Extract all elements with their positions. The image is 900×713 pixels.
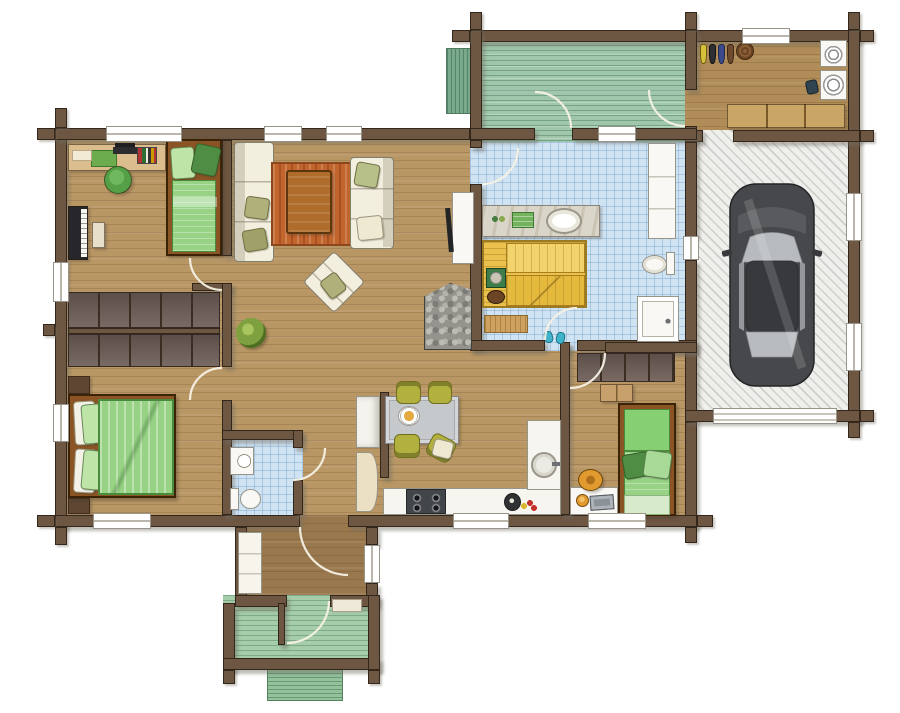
piano-keys	[81, 209, 87, 257]
shoe	[700, 44, 707, 64]
log-end	[848, 422, 860, 438]
laptop	[590, 494, 615, 511]
wall-bath-bottom-a	[470, 340, 545, 351]
single-bed-1	[166, 139, 222, 256]
log-end	[697, 515, 713, 527]
window	[453, 513, 509, 529]
log-end	[470, 12, 482, 30]
washbasin	[230, 447, 254, 475]
double-bed	[68, 394, 176, 498]
armchair-pillow	[319, 271, 348, 301]
garage-service-door	[683, 236, 699, 260]
toilet-bowl	[642, 255, 667, 274]
wall-bath-top-a	[470, 128, 535, 140]
piano-bench	[92, 222, 105, 248]
log-end	[685, 12, 697, 30]
dining-chair	[396, 381, 421, 404]
window	[598, 126, 636, 142]
vanity-sink	[546, 208, 582, 234]
log-end	[37, 128, 55, 140]
watering-can	[805, 79, 820, 95]
wardrobe-row-bottom	[68, 334, 220, 367]
window	[846, 193, 862, 241]
bathroom-tall-cabinet	[648, 143, 676, 239]
bed1-fold	[173, 197, 217, 207]
basket	[736, 42, 754, 60]
sofa-pillow	[244, 195, 271, 220]
log-end	[452, 30, 470, 42]
bed1-pillow-dark	[190, 143, 222, 178]
window	[326, 126, 362, 142]
soap-items	[492, 214, 506, 224]
plate-of-food	[398, 406, 420, 426]
bath-mat	[484, 315, 528, 333]
hall-closet	[238, 532, 262, 594]
log-end	[860, 410, 874, 422]
dryer	[820, 70, 847, 100]
window	[53, 262, 69, 302]
stone-fireplace	[424, 283, 472, 350]
sauna-bench-lower	[506, 275, 585, 306]
dresser	[600, 384, 633, 402]
shower	[637, 296, 679, 342]
office-chair	[104, 166, 132, 194]
sofa-pillow	[241, 227, 268, 253]
shoe	[709, 44, 716, 64]
wall-smallbath-right-a	[293, 430, 303, 448]
sofa-back-shade	[383, 158, 393, 247]
chair-throw	[431, 438, 455, 460]
wardrobe-row-top	[68, 292, 220, 328]
wall-porch-divider	[278, 603, 285, 645]
desk-lamp-orange	[576, 494, 589, 507]
toilet-tank	[666, 252, 675, 275]
sofa-pillow	[353, 161, 381, 189]
wall-porch-right	[368, 595, 380, 670]
washer	[820, 40, 847, 67]
nightstand	[68, 376, 90, 394]
wall-deck-mudroom-a	[685, 30, 697, 90]
dining-chair	[428, 381, 452, 404]
floor-plan-canvas	[0, 0, 900, 713]
book-row	[137, 147, 157, 164]
pantry-cabinet	[356, 452, 378, 512]
coffee-table	[286, 170, 332, 234]
log-end	[685, 527, 697, 543]
garage-door	[713, 408, 837, 424]
single-bed-2	[618, 403, 676, 516]
sauna-bucket	[487, 290, 505, 304]
duvet	[98, 399, 174, 495]
fridge	[356, 396, 380, 448]
monitor	[115, 143, 135, 147]
wall-bedroom2-top-b	[605, 342, 697, 353]
wall-smallbath-top	[222, 430, 303, 440]
desk-chair-orange	[578, 469, 603, 491]
wardrobe-bedroom2	[577, 353, 675, 382]
log-end	[55, 527, 67, 545]
log-end	[55, 108, 67, 128]
towels	[512, 212, 534, 228]
deck-floor	[470, 30, 697, 142]
bed2-top-blanket	[624, 409, 670, 451]
bed2-foot-blanket	[624, 495, 670, 515]
small-bathroom-floor	[222, 430, 303, 527]
log-end	[223, 670, 235, 684]
sauna	[482, 240, 587, 308]
window	[588, 513, 646, 529]
sofa-left	[234, 142, 274, 262]
wall-deck-left	[470, 30, 482, 140]
wall-bedroom2-right	[685, 422, 697, 527]
window	[53, 404, 69, 442]
log-end	[368, 670, 380, 684]
sauna-bench-upper	[506, 243, 585, 273]
shoe	[727, 44, 734, 64]
garage-floor	[685, 130, 860, 422]
porch-steps	[267, 668, 343, 701]
keyboard	[113, 147, 137, 154]
sofa-pillow	[356, 215, 384, 242]
wall-hall-right-a	[366, 527, 378, 545]
log-end	[848, 12, 860, 30]
dining-chair	[394, 434, 420, 458]
kettle	[504, 493, 521, 511]
wall-smallbath-right-b	[293, 480, 303, 515]
wall-bottom-a	[55, 515, 300, 527]
window	[264, 126, 302, 142]
log-end	[43, 324, 55, 336]
wall-office-right	[222, 140, 232, 256]
mudroom-bench	[727, 104, 845, 128]
tv-cabinet	[452, 192, 474, 264]
wall-left	[55, 128, 67, 527]
wall-bath-living-a	[470, 140, 482, 148]
wall-bedroom2-left	[560, 342, 570, 515]
log-end	[37, 515, 55, 527]
toilet-bowl	[240, 489, 261, 509]
fruit	[521, 499, 537, 511]
log-end	[860, 130, 874, 142]
sofa-right	[350, 157, 394, 249]
shoe	[718, 44, 725, 64]
window	[846, 323, 862, 371]
wall-closet-nook-right	[222, 283, 232, 367]
sink-faucet	[552, 462, 560, 466]
wall-top-extension	[470, 30, 860, 42]
papers	[72, 150, 92, 161]
bed1-blanket	[172, 180, 216, 252]
window	[364, 545, 380, 583]
sauna-heater	[486, 268, 506, 288]
potted-plant	[236, 318, 266, 348]
log-end	[860, 30, 874, 42]
piano	[68, 206, 88, 260]
bed2-pillow-light	[642, 449, 672, 479]
gas-stove	[406, 489, 446, 514]
wall-mudroom-garage-b	[733, 130, 860, 142]
wall-porch-bottom	[223, 658, 380, 670]
window	[742, 28, 790, 44]
window	[93, 513, 151, 529]
nightstand	[68, 498, 90, 514]
window	[106, 126, 182, 142]
toilet-tank	[230, 488, 239, 510]
wall-garage-left-a	[685, 142, 697, 238]
porch-doormat	[332, 599, 362, 612]
